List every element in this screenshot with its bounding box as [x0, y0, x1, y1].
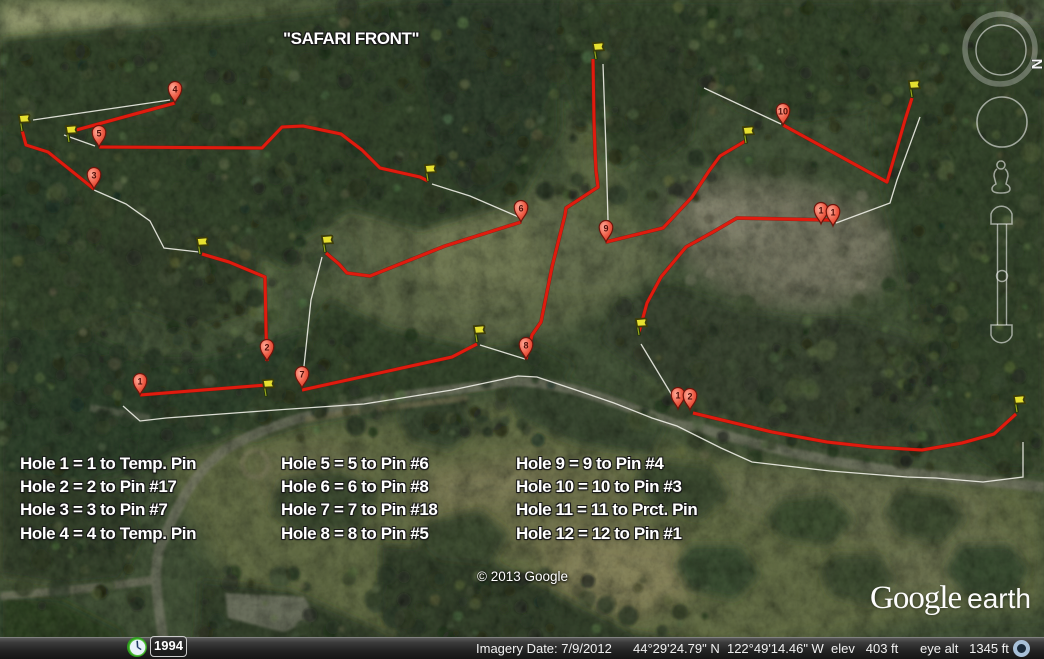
svg-text:1: 1	[137, 376, 142, 386]
svg-text:1: 1	[818, 205, 823, 215]
svg-text:2: 2	[687, 391, 692, 401]
svg-text:6: 6	[518, 203, 523, 213]
svg-text:1: 1	[675, 390, 680, 400]
svg-text:2: 2	[264, 342, 269, 352]
svg-text:3: 3	[91, 170, 96, 180]
svg-text:9: 9	[603, 223, 608, 233]
svg-text:5: 5	[96, 128, 101, 138]
svg-text:7: 7	[299, 369, 304, 379]
svg-text:8: 8	[523, 340, 528, 350]
svg-text:4: 4	[172, 84, 177, 94]
svg-text:N: N	[1028, 59, 1044, 70]
svg-text:1: 1	[830, 207, 835, 217]
svg-text:10: 10	[778, 106, 788, 116]
